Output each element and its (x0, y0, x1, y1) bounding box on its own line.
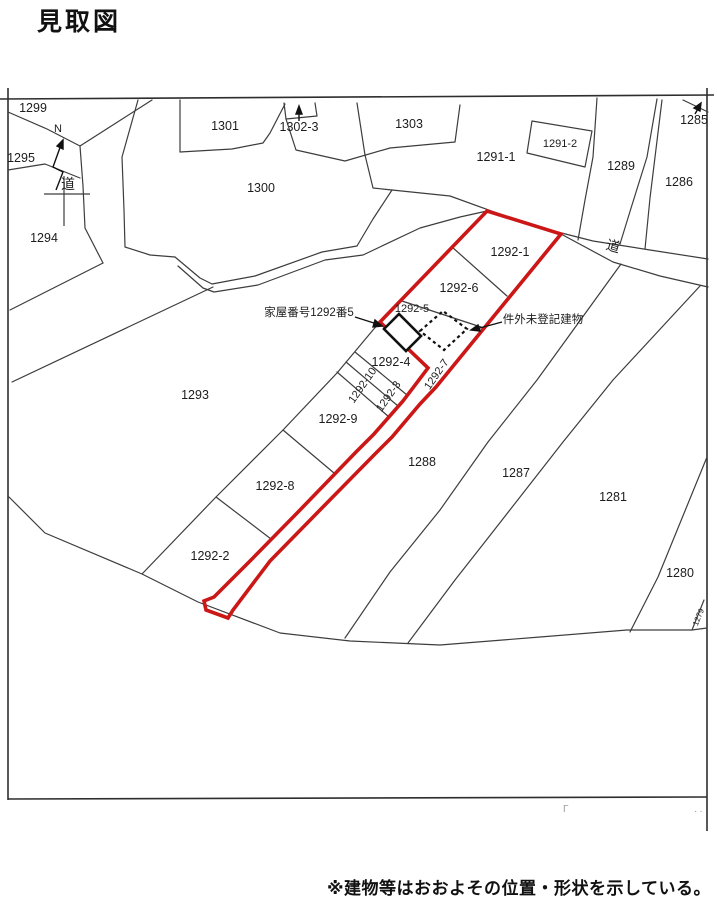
house-number-annotation: 家屋番号1292番5 (264, 305, 353, 319)
annotation-arrows (296, 103, 701, 331)
parcel-label-1303: 1303 (395, 117, 423, 131)
parcel-label-1292-2: 1292-2 (191, 549, 230, 563)
parcel-label-1292-3: 1292-3 (374, 379, 403, 414)
boundary-1293-north (12, 287, 213, 382)
subject-parcel-outline (204, 211, 561, 618)
parcel-label-1291-2: 1291-2 (543, 138, 577, 150)
parcel-label-1295: 1295 (7, 151, 35, 165)
parcel-label-1299: 1299 (19, 101, 47, 115)
boundary-path-lower (178, 211, 487, 292)
unregistered-building-shape (420, 311, 467, 350)
boundary-1285 (683, 100, 708, 112)
scan-mark-left: Γ (563, 804, 569, 815)
frame-top (0, 95, 714, 99)
parcel-label-1300: 1300 (247, 181, 275, 195)
page-title: 見取図 (37, 2, 121, 38)
parcel-label-1285: 1285 (680, 113, 708, 127)
parcel-label-1292-4: 1292-4 (372, 355, 411, 369)
boundary-1292-9-south (283, 430, 334, 473)
north-label: N (54, 123, 62, 135)
parcel-1302-3-arrowhead (296, 106, 302, 114)
parcel-label-1301: 1301 (211, 119, 239, 133)
parcel-label-1292-9: 1292-9 (319, 412, 358, 426)
registered-building-shape (384, 314, 421, 351)
unregistered-building-annotation: 件外未登記建物 (503, 312, 584, 326)
boundary-1287-1281 (408, 286, 700, 643)
parcel-label-1280: 1280 (666, 566, 694, 580)
parcel-label-1292-8: 1292-8 (256, 479, 295, 493)
boundary-1289-west (578, 98, 597, 240)
boundary-1292-8-south (216, 497, 271, 539)
unregistered-arrowhead (471, 325, 480, 331)
parcel-label-1291-1: 1291-1 (477, 150, 516, 164)
boundary-road-ne-lower (561, 234, 708, 287)
parcel-label-1289: 1289 (607, 159, 635, 173)
north-arrow-head (57, 140, 63, 149)
sketch-map-page: 見取図 (0, 0, 717, 908)
parcel-label-1279: 1279 (691, 607, 706, 627)
parcel-labels: 1299 1295 N 道 1294 1301 1302-3 1303 1300… (7, 101, 708, 627)
map-frame (0, 88, 714, 831)
boundary-1299-south (8, 112, 80, 146)
frame-bottom (8, 797, 707, 799)
parcel-label-1292-1: 1292-1 (491, 245, 530, 259)
boundary-path-upper (175, 190, 708, 284)
parcel-label-1293: 1293 (181, 388, 209, 402)
boundary-1300-west (122, 100, 175, 257)
parcel-label-1292-6: 1292-6 (440, 281, 479, 295)
cadastral-map: 1299 1295 N 道 1294 1301 1302-3 1303 1300… (0, 0, 717, 908)
road-label-northeast: 道 (604, 236, 622, 255)
parcel-label-1287: 1287 (502, 466, 530, 480)
scan-mark-right: ·· (694, 806, 705, 817)
boundary-south-curve (9, 497, 707, 645)
parcel-label-1292-5: 1292-5 (395, 303, 429, 315)
parcel-label-1288: 1288 (408, 455, 436, 469)
boundary-1294-northeast (10, 263, 103, 310)
parcel-label-1294: 1294 (30, 231, 58, 245)
parcel-label-1302-3: 1302-3 (280, 120, 319, 134)
parcel-boundaries (8, 98, 708, 645)
footnote: ※建物等はおおよその位置・形状を示している。 (327, 874, 711, 899)
road-label-northwest: 道 (61, 176, 75, 192)
parcel-1285-arrowhead (694, 103, 701, 111)
boundary-1293-east (142, 322, 380, 574)
boundary-1281-1280 (630, 457, 707, 632)
boundary-road-nw-west (80, 146, 103, 263)
parcel-label-1281: 1281 (599, 490, 627, 504)
boundary-1300-east (357, 103, 392, 190)
boundary-1299-east (80, 100, 152, 146)
parcel-label-1286: 1286 (665, 175, 693, 189)
